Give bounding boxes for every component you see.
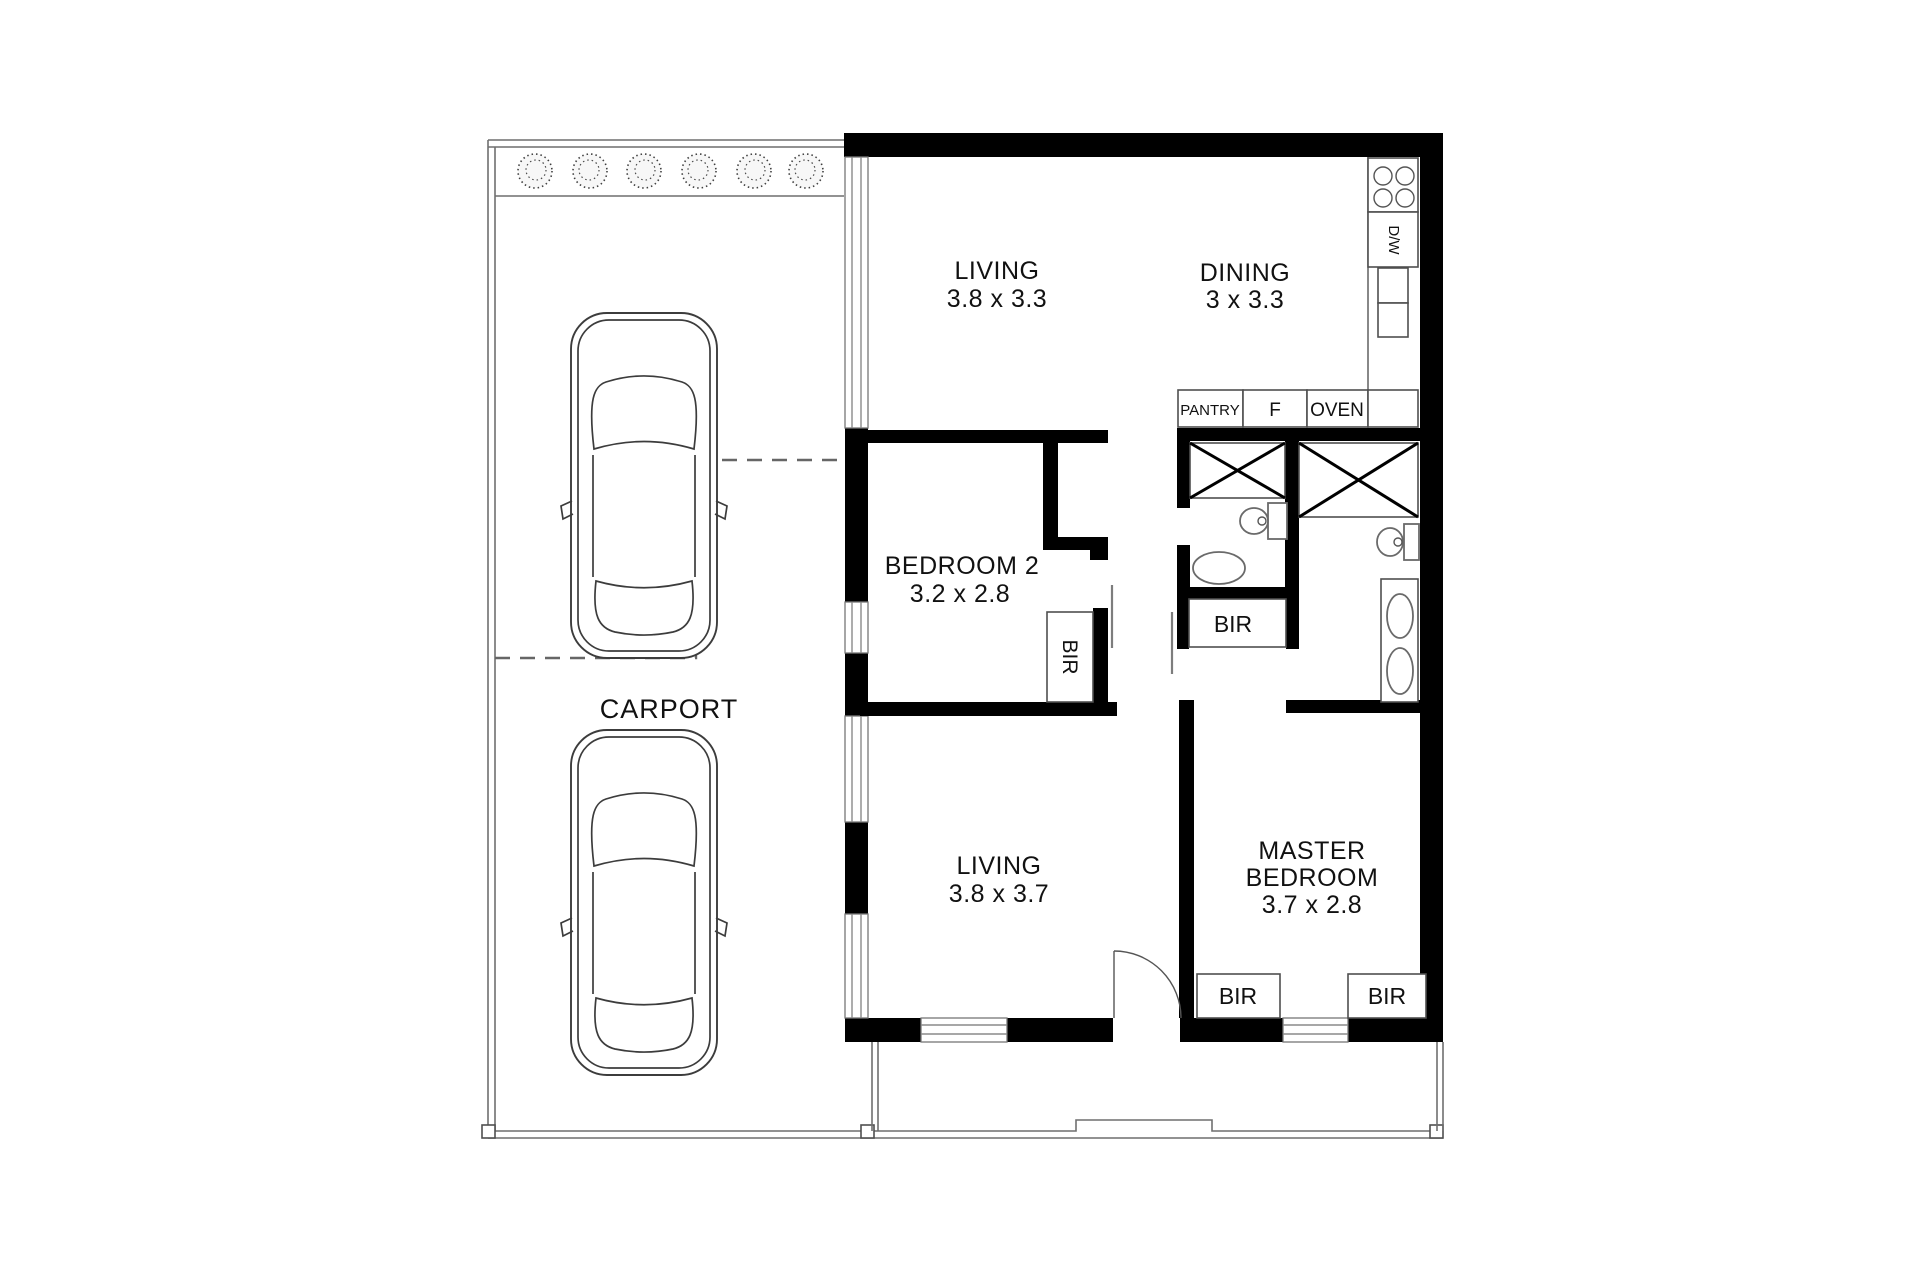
window-master-south	[1283, 1018, 1348, 1042]
dishwasher-box: D/W	[1368, 212, 1418, 267]
window-living-west-lower	[845, 914, 868, 1018]
master-bir-left-label: BIR	[1219, 983, 1257, 1009]
fence-post	[482, 1125, 495, 1138]
bush-icon	[789, 154, 823, 188]
floor-plan-drawing: D/W PANTRY F OVEN BIR BIR	[0, 0, 1920, 1280]
window-living-west-upper	[845, 716, 868, 822]
bush-icon	[737, 154, 771, 188]
dishwasher-label: D/W	[1385, 225, 1402, 255]
bedroom2-dims: 3.2 x 2.8	[910, 580, 1010, 608]
vanity-icon	[1381, 579, 1418, 702]
living-top-name: LIVING	[955, 257, 1040, 285]
oven-label: OVEN	[1310, 400, 1364, 421]
master-name-line1: MASTER	[1258, 837, 1365, 865]
glazed-wall-west	[845, 157, 868, 428]
wardrobe-x-icon-right	[1299, 443, 1418, 517]
sink-icon	[1378, 268, 1408, 337]
master-bir-robe-right: BIR	[1348, 974, 1426, 1018]
living-bottom-name: LIVING	[957, 852, 1042, 880]
dining-name: DINING	[1200, 259, 1291, 287]
master-bir-right-label: BIR	[1368, 983, 1406, 1009]
pantry-cabinet-row: PANTRY F OVEN	[1178, 390, 1418, 427]
carport-label: CARPORT	[600, 694, 739, 724]
wardrobe-x-icon-left	[1190, 443, 1285, 498]
hall-bir-label: BIR	[1214, 611, 1252, 637]
living-bottom-dims: 3.8 x 3.7	[949, 880, 1049, 908]
entry-door	[1114, 951, 1181, 1018]
master-name-line2: BEDROOM	[1246, 864, 1379, 892]
dining-dims: 3 x 3.3	[1206, 286, 1285, 314]
planter-bushes	[518, 154, 823, 188]
bush-icon	[627, 154, 661, 188]
fridge-label: F	[1269, 400, 1281, 421]
bedroom2-bir-label: BIR	[1058, 639, 1081, 674]
hall-bir-robe: BIR	[1189, 599, 1286, 647]
master-bir-robe-left: BIR	[1197, 974, 1280, 1018]
bedroom2-bir-robe: BIR	[1047, 612, 1093, 702]
toilet-icon-2	[1377, 524, 1419, 560]
pantry-label: PANTRY	[1180, 402, 1239, 419]
bush-icon	[518, 154, 552, 188]
master-dims: 3.7 x 2.8	[1262, 891, 1362, 919]
living-top-dims: 3.8 x 3.3	[947, 285, 1047, 313]
window-living-south	[921, 1018, 1007, 1042]
cooktop-icon	[1368, 158, 1418, 212]
toilet-icon-1	[1240, 503, 1287, 539]
floor-plan-page: D/W PANTRY F OVEN BIR BIR	[0, 0, 1920, 1280]
car-icon-bottom	[561, 730, 727, 1075]
bush-icon	[573, 154, 607, 188]
bedroom2-name: BEDROOM 2	[885, 552, 1040, 580]
bush-icon	[682, 154, 716, 188]
window-bedroom2-west	[845, 602, 868, 653]
car-icon-top	[561, 313, 727, 658]
basin-icon	[1193, 552, 1245, 584]
